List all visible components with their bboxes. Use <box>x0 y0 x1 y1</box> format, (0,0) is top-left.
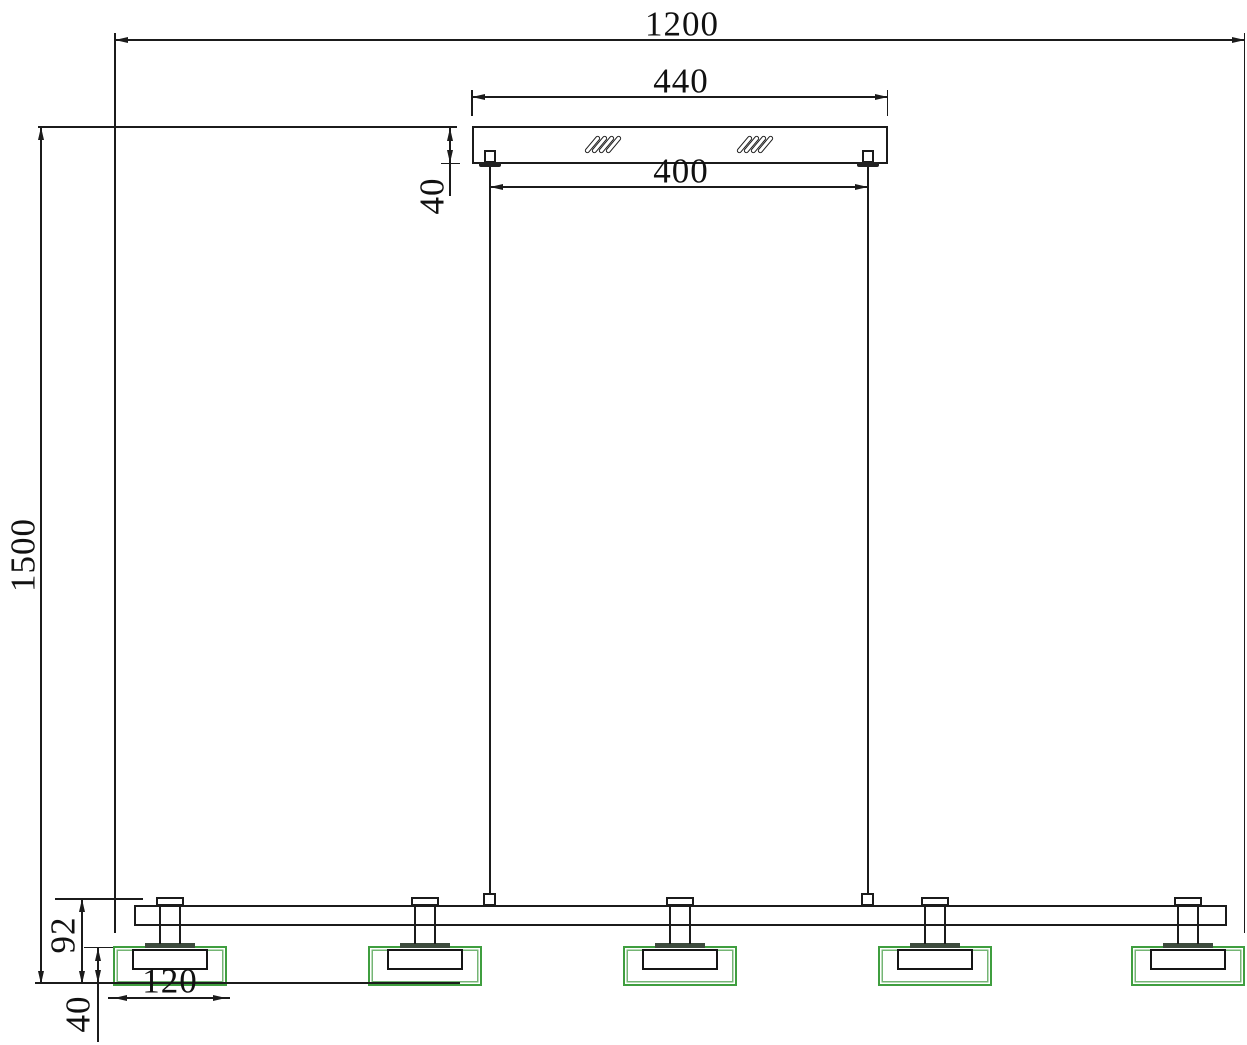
arrowhead-right-icon <box>875 94 888 100</box>
lamp-shade-inner-body <box>897 949 973 970</box>
lamp-head-flange <box>1163 943 1213 948</box>
dim-wire-spacing-label: 400 <box>653 154 709 189</box>
lamp-shade-inner-body <box>387 949 463 970</box>
lamp-head-cap <box>921 897 949 906</box>
arrowhead-up-icon <box>38 127 44 140</box>
dim-drop-height-label: 1500 <box>6 518 41 592</box>
lamp-head-stem <box>1197 906 1199 944</box>
dim-overall-width-label: 1200 <box>645 7 719 42</box>
extension-line-head-top <box>55 898 143 900</box>
arrowhead-left-icon <box>472 94 485 100</box>
lamp-head-stem <box>669 906 671 944</box>
suspension-wire <box>489 167 491 893</box>
extension-line-ceiling <box>38 126 457 128</box>
lamp-head-cap <box>1174 897 1202 906</box>
lamp-head-stem <box>924 906 926 944</box>
extension-line-left <box>114 33 116 933</box>
lamp-head-cap <box>666 897 694 906</box>
dim-canopy-height-label: 40 <box>415 178 450 215</box>
arrowhead-left-icon <box>490 184 503 190</box>
fixture-bar <box>134 905 1227 926</box>
lamp-head-flange <box>910 943 960 948</box>
lamp-shade-inner-body <box>1150 949 1226 970</box>
baseline-reference-line <box>35 982 460 984</box>
lamp-head-stem <box>1177 906 1179 944</box>
lamp-head-stem <box>414 906 416 944</box>
lamp-head-flange <box>145 943 195 948</box>
lamp-shade-inner-body <box>642 949 718 970</box>
arrowhead-up-icon <box>447 128 453 141</box>
dim-shade-height-label: 40 <box>61 996 96 1033</box>
lamp-head-stem <box>434 906 436 944</box>
dim-head-height-label: 92 <box>46 917 81 954</box>
lamp-head-cap <box>411 897 439 906</box>
lamp-head-flange <box>655 943 705 948</box>
lamp-head-stem <box>689 906 691 944</box>
lamp-head-cap <box>156 897 184 906</box>
lamp-head-stem <box>944 906 946 944</box>
arrowhead-left-icon <box>115 37 128 43</box>
arrowhead-up-icon <box>95 948 101 961</box>
technical-drawing-canvas: 1200 440 400 1500 40 92 40 120 <box>0 0 1247 1045</box>
lamp-head-flange <box>400 943 450 948</box>
lamp-head-stem <box>179 906 181 944</box>
extension-line-right <box>1244 33 1246 933</box>
dim-canopy-width-label: 440 <box>653 64 709 99</box>
lamp-head-stem <box>159 906 161 944</box>
wire-bar-clip <box>483 893 496 906</box>
arrowhead-up-icon <box>79 899 85 912</box>
suspension-wire <box>867 167 869 893</box>
arrowhead-down-icon <box>447 150 453 163</box>
wire-bar-clip <box>861 893 874 906</box>
dim-shade-width-label: 120 <box>142 964 198 999</box>
arrowhead-right-icon <box>1232 37 1245 43</box>
arrowhead-right-icon <box>855 184 868 190</box>
